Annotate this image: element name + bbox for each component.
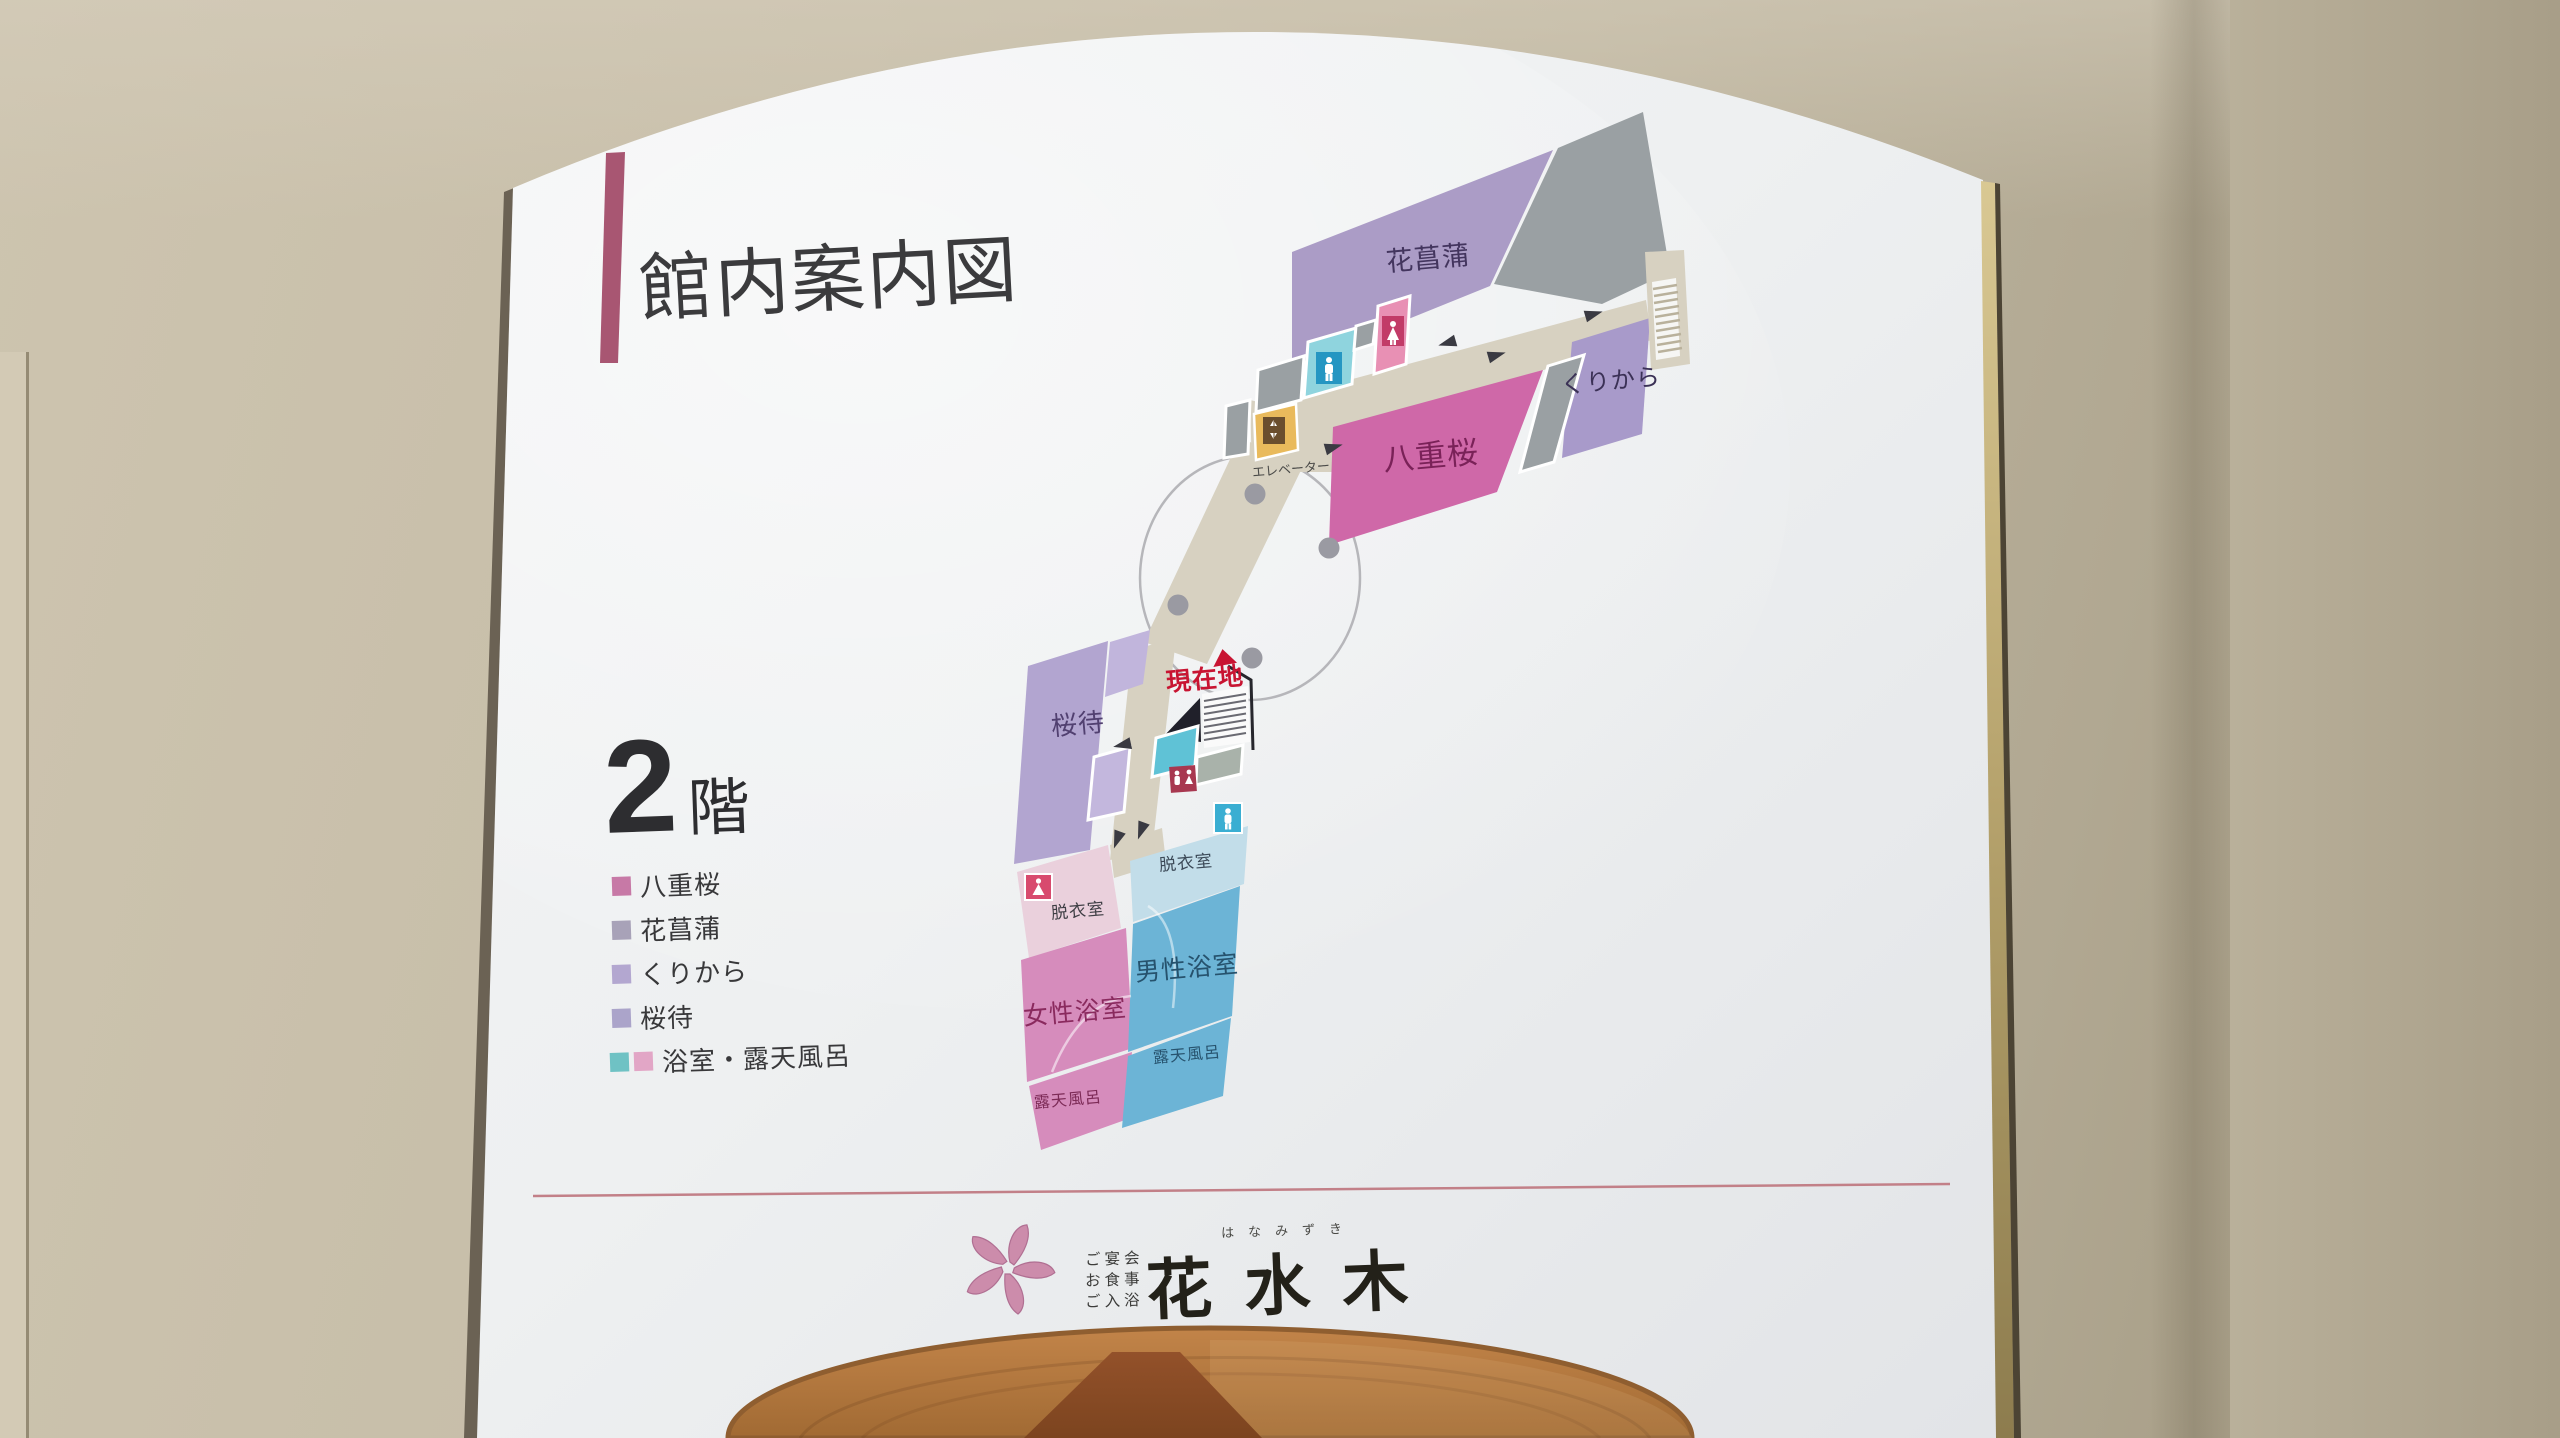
legend-item-sakuramachi: 桜待 — [611, 997, 694, 1037]
current-location-label: 現在地 — [1165, 664, 1245, 696]
legend-label: くりから — [639, 951, 748, 992]
legend-label: 花菖蒲 — [639, 908, 721, 948]
legend-swatch — [612, 876, 632, 896]
legend-label: 八重桜 — [639, 864, 721, 904]
floor-indicator: 2階 — [601, 707, 752, 863]
legend-swatch — [610, 1052, 630, 1072]
elevator-icon — [1254, 404, 1298, 460]
legend-item-hanashoubu: 花菖蒲 — [611, 908, 721, 949]
escalator-hatch-bg — [1652, 278, 1680, 360]
room-label-sakuramachi: 桜待 — [1050, 709, 1106, 740]
men-toilet-icon — [1316, 352, 1342, 384]
legend-label: 桜待 — [639, 997, 694, 1036]
route-node — [1319, 538, 1340, 559]
photo-of-floor-guide-sign: 館内案内図 2階 八重桜 花菖蒲 くりから 桜待 浴室・露天風呂 花菖蒲 くりか… — [0, 0, 2560, 1438]
legend-swatch — [634, 1052, 654, 1072]
route-node — [1168, 595, 1189, 616]
legend-item-yaezakura: 八重桜 — [611, 864, 721, 905]
legend-label: 浴室・露天風呂 — [661, 1036, 851, 1080]
men-toilet-icon-bath — [1214, 803, 1242, 833]
dressing-room-womens-label: 脱衣室 — [1050, 900, 1105, 922]
service-item-bathing: ご入浴 — [1085, 1288, 1144, 1312]
women-toilet-icon-bath — [1025, 874, 1052, 900]
legend-swatch — [612, 964, 632, 984]
dressing-room-mens-label: 脱衣室 — [1158, 852, 1213, 874]
women-toilet-icon — [1382, 316, 1404, 346]
legend-swatch — [612, 1008, 632, 1028]
page-title: 館内案内図 — [636, 210, 1021, 337]
route-node — [1242, 648, 1263, 669]
floor-number: 2 — [601, 711, 680, 860]
shared-toilet-icon — [1169, 765, 1197, 793]
sakuramachi-annex-right — [1088, 747, 1130, 820]
legend-item-kurikara: くりから — [611, 951, 748, 993]
legend-swatch — [612, 920, 632, 940]
gray-block-left-of-elevator — [1224, 400, 1250, 458]
gray-block-between-toilets — [1354, 320, 1376, 350]
route-node — [1245, 484, 1266, 505]
room-label-yaezakura: 八重桜 — [1382, 436, 1480, 475]
brand-name: 花水木 — [1144, 1226, 1441, 1333]
floor-suffix: 階 — [687, 773, 751, 844]
